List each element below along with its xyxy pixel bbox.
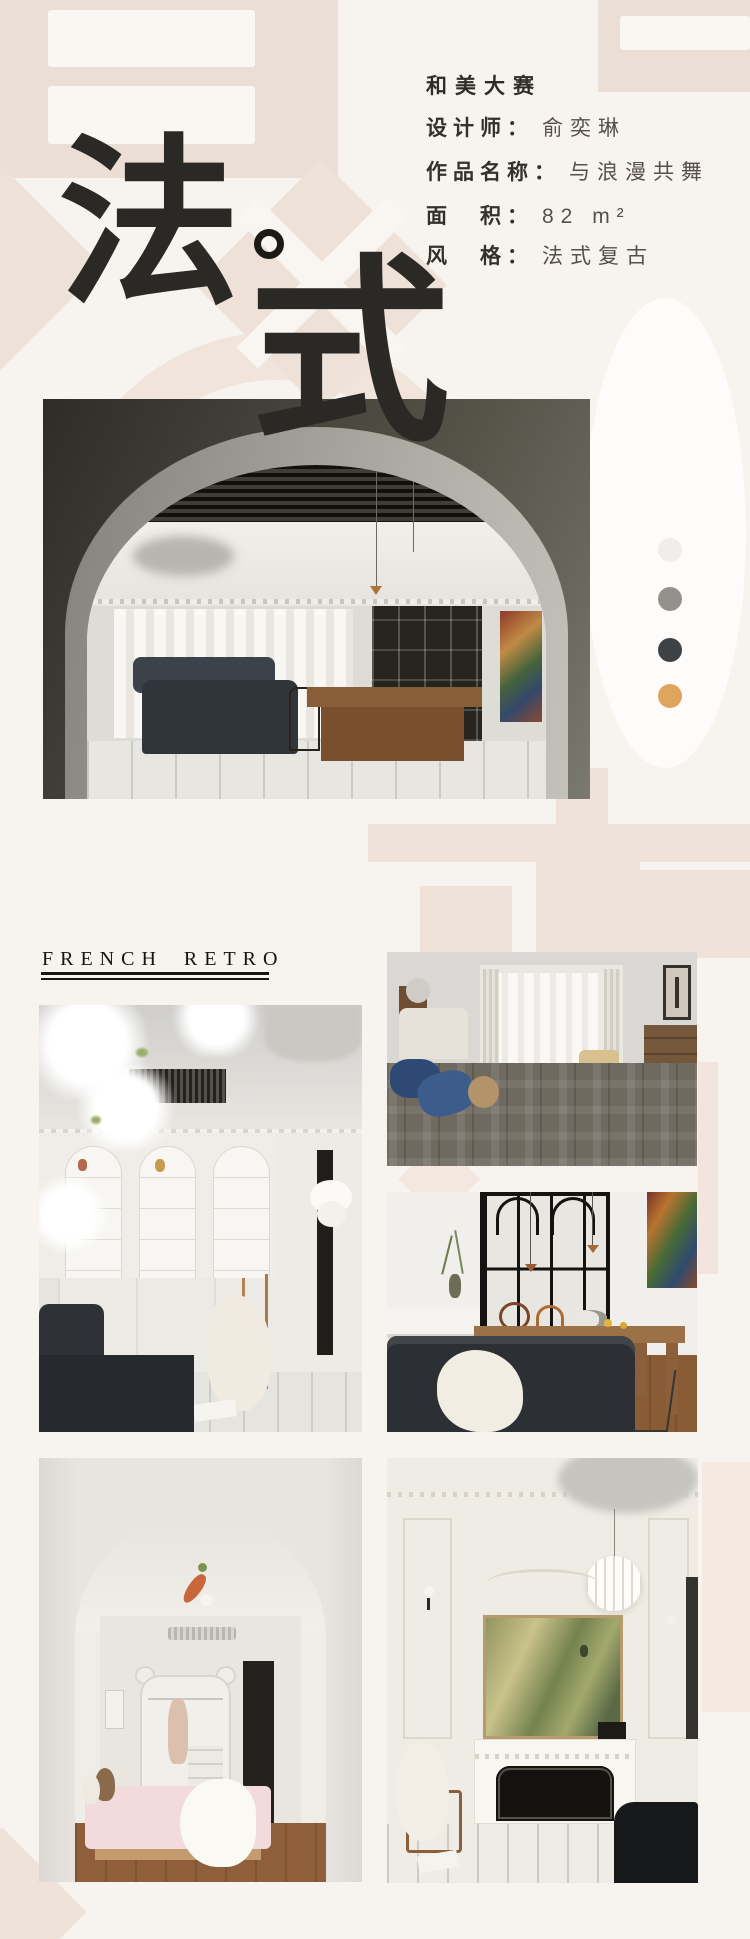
black-sofa-corner <box>614 1802 698 1883</box>
impressionist-painting <box>483 1615 623 1738</box>
hero-char-fa: 法 <box>58 136 240 318</box>
plush-toy <box>82 1775 100 1805</box>
blossom-foreground <box>168 1005 265 1056</box>
pendant-wire <box>530 1192 531 1264</box>
copper-pendant <box>525 1264 537 1272</box>
arch-column <box>39 1458 78 1882</box>
partition-arch <box>551 1197 594 1235</box>
palette-dot-tan <box>658 684 682 708</box>
pendant-wire <box>413 465 414 552</box>
leaning-frame <box>663 965 691 1021</box>
shelf-decor <box>155 1159 165 1172</box>
dark-sofa <box>142 680 298 754</box>
photo-fireplace-room <box>387 1458 698 1883</box>
ceiling <box>75 1513 327 1631</box>
palette-dot-charcoal <box>658 638 682 662</box>
blossom-foreground <box>39 1176 110 1253</box>
partition-arch <box>496 1197 539 1235</box>
field-area-label: 面 积： <box>426 205 534 228</box>
fireplace-arch-insert <box>496 1766 614 1821</box>
field-style-value: 法式复古 <box>542 245 654 268</box>
field-style: 风 格：法式复古 <box>426 240 654 270</box>
title-underline-thin <box>41 978 269 980</box>
abstract-painting <box>500 611 541 721</box>
field-style-label: 风 格： <box>426 245 534 268</box>
white-blanket <box>180 1779 256 1868</box>
photo-shelving-room <box>39 1005 362 1432</box>
palette-dot-gray <box>658 587 682 611</box>
hanging-robe <box>168 1698 188 1764</box>
flower-sprig <box>454 1231 464 1275</box>
glitter-chandelier <box>265 1005 362 1061</box>
pendant-wire <box>592 1192 593 1245</box>
pendant-wire <box>614 1509 615 1556</box>
photo-bedroom <box>387 952 697 1166</box>
wall-sconce <box>427 1598 430 1610</box>
field-project-name-value: 与浪漫共舞 <box>569 161 709 184</box>
lemon <box>620 1322 627 1329</box>
wall-picture <box>105 1690 125 1729</box>
headboard <box>399 1008 467 1059</box>
palette-dot-light <box>658 538 682 562</box>
watermark-bar <box>48 10 255 67</box>
wall-panel <box>403 1518 453 1739</box>
watermark-hbar <box>368 824 750 862</box>
dining-table-front <box>321 707 463 761</box>
watermark-chunk <box>536 862 640 952</box>
pendant-wire <box>376 465 377 586</box>
dining-table <box>307 687 482 707</box>
window-blind <box>686 1577 698 1739</box>
chair-fleece-throw <box>396 1743 449 1841</box>
wall-panel <box>648 1518 688 1739</box>
arched-niche <box>213 1146 270 1285</box>
pendant-lamp <box>370 586 382 595</box>
painting-figure <box>580 1645 588 1657</box>
poster-canvas: 法 式 和美大赛 设计师：俞奕琳 作品名称：与浪漫共舞 面 积：82 m² 风 … <box>0 0 750 1939</box>
blossom-foreground <box>71 1065 181 1150</box>
field-project-name: 作品名称：与浪漫共舞 <box>426 156 709 186</box>
glitter-chandelier <box>558 1458 698 1513</box>
ac-vent <box>168 1627 236 1640</box>
cornice-molding <box>87 599 546 604</box>
carrot-leaf <box>198 1563 207 1572</box>
chandelier <box>133 536 234 576</box>
vase <box>449 1274 461 1298</box>
watermark-bar <box>620 16 750 50</box>
section-title: FRENCH RETRO <box>42 948 284 971</box>
black-sofa <box>39 1355 194 1432</box>
leaf <box>136 1048 148 1057</box>
hero-char-shi: 式 <box>250 256 450 456</box>
shelf-decor <box>78 1159 87 1171</box>
field-area-value: 82 m² <box>542 205 631 228</box>
arch-opening <box>75 1513 327 1882</box>
wall-sconce-orb <box>424 1586 434 1596</box>
copper-pendant <box>587 1245 599 1253</box>
arch-opening <box>87 465 546 799</box>
abstract-painting <box>647 1192 697 1288</box>
leaf <box>91 1116 101 1124</box>
field-designer: 设计师：俞奕琳 <box>426 112 626 142</box>
photo-dining <box>387 1192 697 1432</box>
field-designer-label: 设计师： <box>426 117 534 140</box>
hanging-rod <box>148 1698 224 1700</box>
photo-kids-room <box>39 1458 362 1882</box>
watermark-strip-right <box>698 1062 718 1274</box>
flower-sprig <box>441 1236 453 1275</box>
watermark-block <box>640 870 750 958</box>
field-designer-value: 俞奕琳 <box>542 117 626 140</box>
field-project-name-label: 作品名称： <box>426 161 561 184</box>
watermark-strip-bottom-right <box>702 1462 750 1712</box>
arch-column <box>323 1458 362 1882</box>
ceiling-slats <box>114 465 518 522</box>
white-console <box>387 1307 480 1338</box>
molding-swag <box>487 1569 599 1598</box>
watermark-chunk <box>420 886 512 952</box>
knot-pillow <box>468 1076 499 1108</box>
white-pendant <box>317 1201 346 1227</box>
competition-title: 和美大赛 <box>426 70 542 100</box>
arched-niche <box>139 1146 196 1285</box>
title-underline-thick <box>41 972 269 975</box>
field-area: 面 积：82 m² <box>426 200 631 230</box>
